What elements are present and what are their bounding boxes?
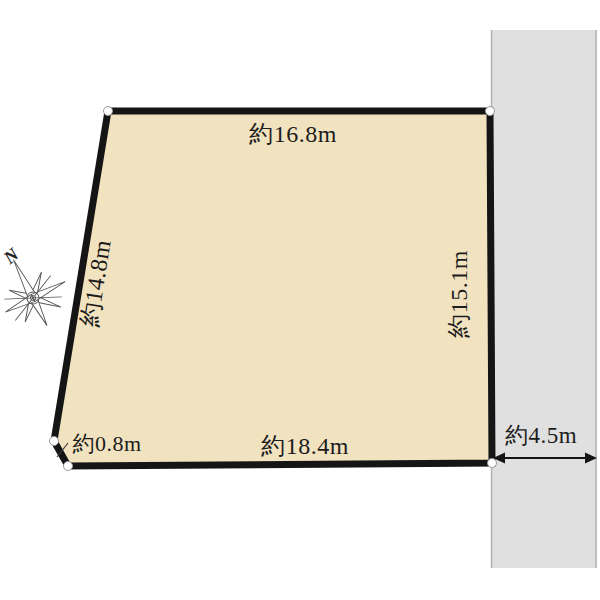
corner-marker [50,437,59,446]
dimension-label-bottom: 約18.4m [261,434,349,458]
road-width-label: 約4.5m [505,424,577,447]
road-strip [491,30,597,568]
corner-marker [486,107,495,116]
land-plot-diagram: N 約16.8m 約15.1m 約18.4m 約14.8m 約0.8m 約4.5… [0,0,600,600]
plot-polygon [54,111,492,466]
corner-marker [64,462,73,471]
corner-marker [104,107,113,116]
dimension-label-top: 約16.8m [249,122,337,146]
dimension-label-corner: 約0.8m [72,433,141,455]
corner-marker [488,459,497,468]
compass-north-label: N [0,244,23,269]
dimension-label-right: 約15.1m [447,250,471,338]
